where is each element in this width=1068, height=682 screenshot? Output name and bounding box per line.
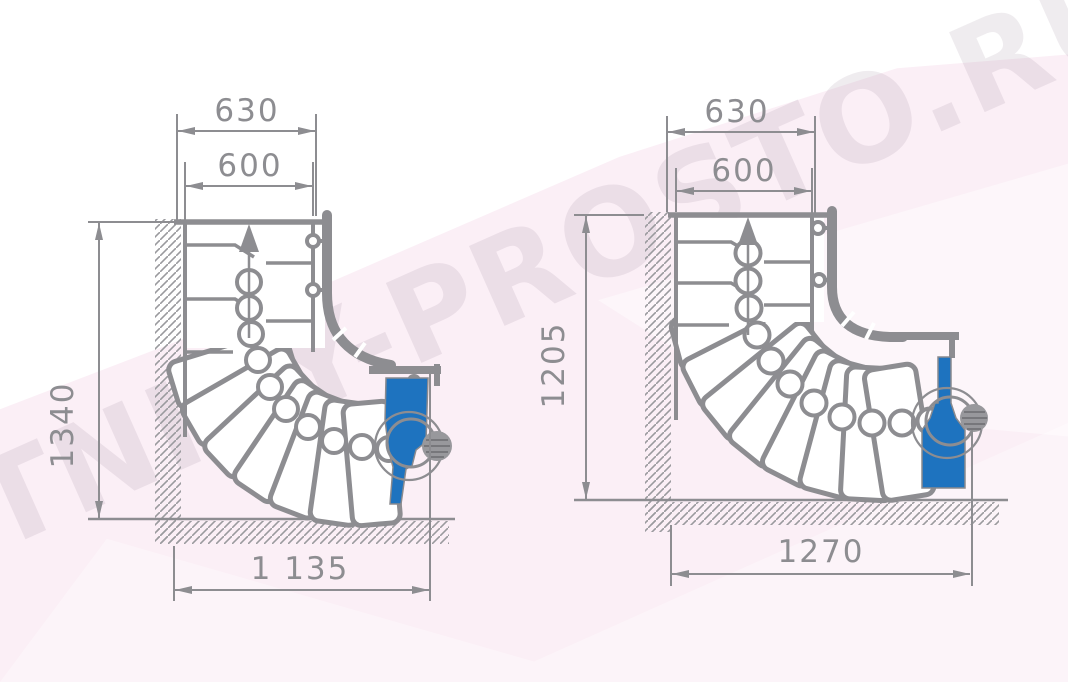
baluster-mount bbox=[307, 284, 319, 296]
right-handrail bbox=[811, 211, 903, 339]
dimension-label-top-outer: 630 bbox=[704, 94, 769, 130]
newel-post-blue bbox=[385, 378, 428, 504]
right-wall-hatch bbox=[645, 212, 671, 532]
dimension-label-top-outer: 630 bbox=[214, 93, 279, 129]
left-floor-hatch bbox=[157, 521, 449, 544]
dimension-label-width: 1 135 bbox=[251, 551, 350, 587]
baluster-mount bbox=[812, 222, 824, 234]
dimension-label-width: 1270 bbox=[778, 534, 865, 570]
right-diagram: 630 600 1205 1270 bbox=[536, 94, 1008, 586]
dimension-label-height: 1205 bbox=[536, 322, 572, 409]
baluster-mount bbox=[307, 235, 319, 247]
dimension-label-top-inner: 600 bbox=[711, 153, 776, 189]
dimension-label-height: 1340 bbox=[45, 382, 81, 469]
right-floor-hatch bbox=[647, 502, 999, 525]
newel-post-blue bbox=[922, 357, 965, 488]
left-diagram: 630 600 1340 1 135 bbox=[45, 93, 455, 601]
baluster-mount bbox=[813, 274, 825, 286]
staircase-technical-drawing: 630 600 1340 1 135 bbox=[0, 0, 1068, 682]
dimension-label-top-inner: 600 bbox=[217, 148, 282, 184]
